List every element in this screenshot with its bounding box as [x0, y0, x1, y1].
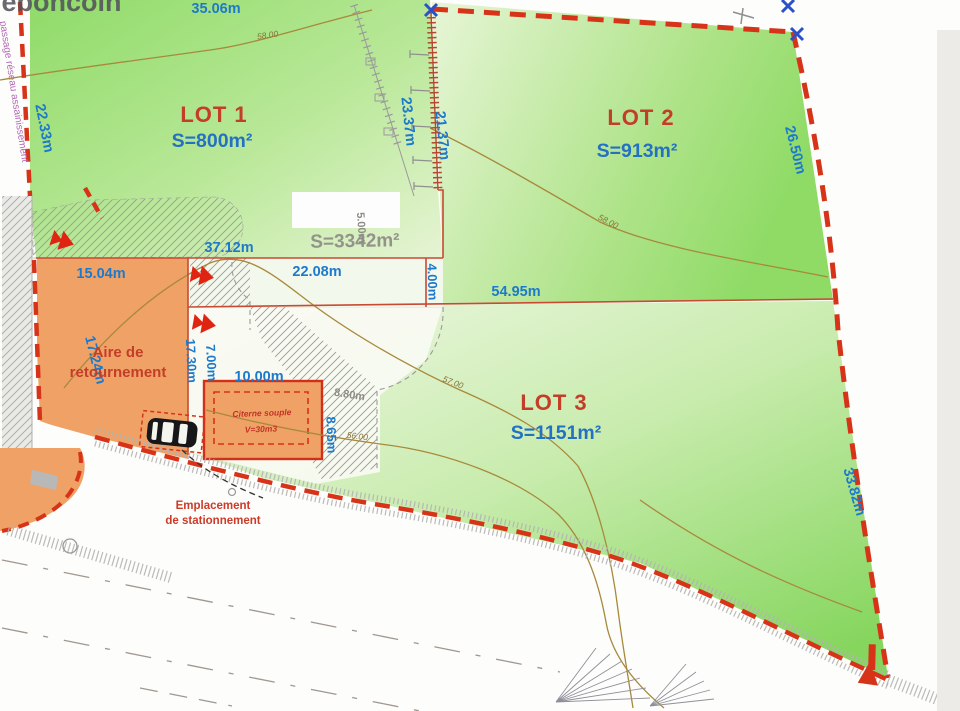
total-area-label: S=3342m²	[310, 230, 400, 253]
car-icon	[146, 417, 198, 448]
lot3-label: LOT 3	[520, 390, 587, 415]
cistern-label-1: Citerne souple	[232, 407, 292, 419]
turning-area-label-1: Aire de	[93, 344, 144, 361]
dim-8-65: 8.65m	[323, 416, 339, 453]
dim-15-04: 15.04m	[76, 266, 125, 282]
lot1-label: LOT 1	[180, 102, 247, 127]
cistern-label-2: V=30m3	[245, 423, 278, 434]
turning-area-label-2: retournement	[70, 364, 167, 381]
lot3-area: S=1151m²	[511, 422, 602, 444]
small-point	[229, 489, 236, 496]
dim-5-00: 5.00m	[354, 212, 368, 244]
dim-54-95: 54.95m	[491, 284, 540, 300]
lot1-area: S=800m²	[172, 130, 253, 152]
dim-10-00: 10.00m	[234, 369, 283, 385]
lot2-label: LOT 2	[607, 105, 674, 130]
dim-7-00: 7.00m	[203, 344, 220, 382]
boundary-west-upper	[20, 2, 30, 196]
hatch-band-southwest	[8, 530, 172, 578]
dim-4-00: 4.00m	[424, 263, 440, 300]
slope-fan-hatch	[556, 648, 714, 706]
label-backplate	[292, 192, 400, 228]
bench-mark-icon	[733, 8, 754, 24]
dim-37-12: 37.12m	[204, 240, 253, 256]
site-plan: leboncoin passage réseau assainissement …	[0, 0, 960, 711]
dim-17-30: 17.30m	[183, 338, 200, 383]
dim-22-08: 22.08m	[292, 264, 341, 280]
survey-cross-icon	[782, 0, 794, 12]
road-band-left	[2, 196, 32, 462]
dim-35-06: 35.06m	[191, 1, 240, 17]
parking-label-2: de stationnement	[165, 515, 260, 527]
site-plan-svg: leboncoin passage réseau assainissement …	[0, 0, 960, 711]
watermark: leboncoin	[0, 0, 122, 17]
lot2-area: S=913m²	[597, 140, 678, 162]
parking-label-1: Emplacement	[176, 500, 251, 512]
road-dash-lines	[2, 560, 560, 711]
scan-edge	[937, 30, 960, 711]
